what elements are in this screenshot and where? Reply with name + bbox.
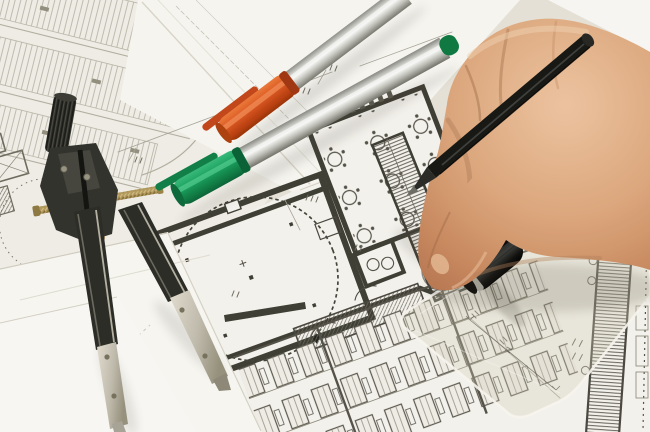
scene	[0, 0, 650, 432]
photo-architect-workspace	[0, 0, 650, 432]
vignette	[0, 0, 650, 432]
